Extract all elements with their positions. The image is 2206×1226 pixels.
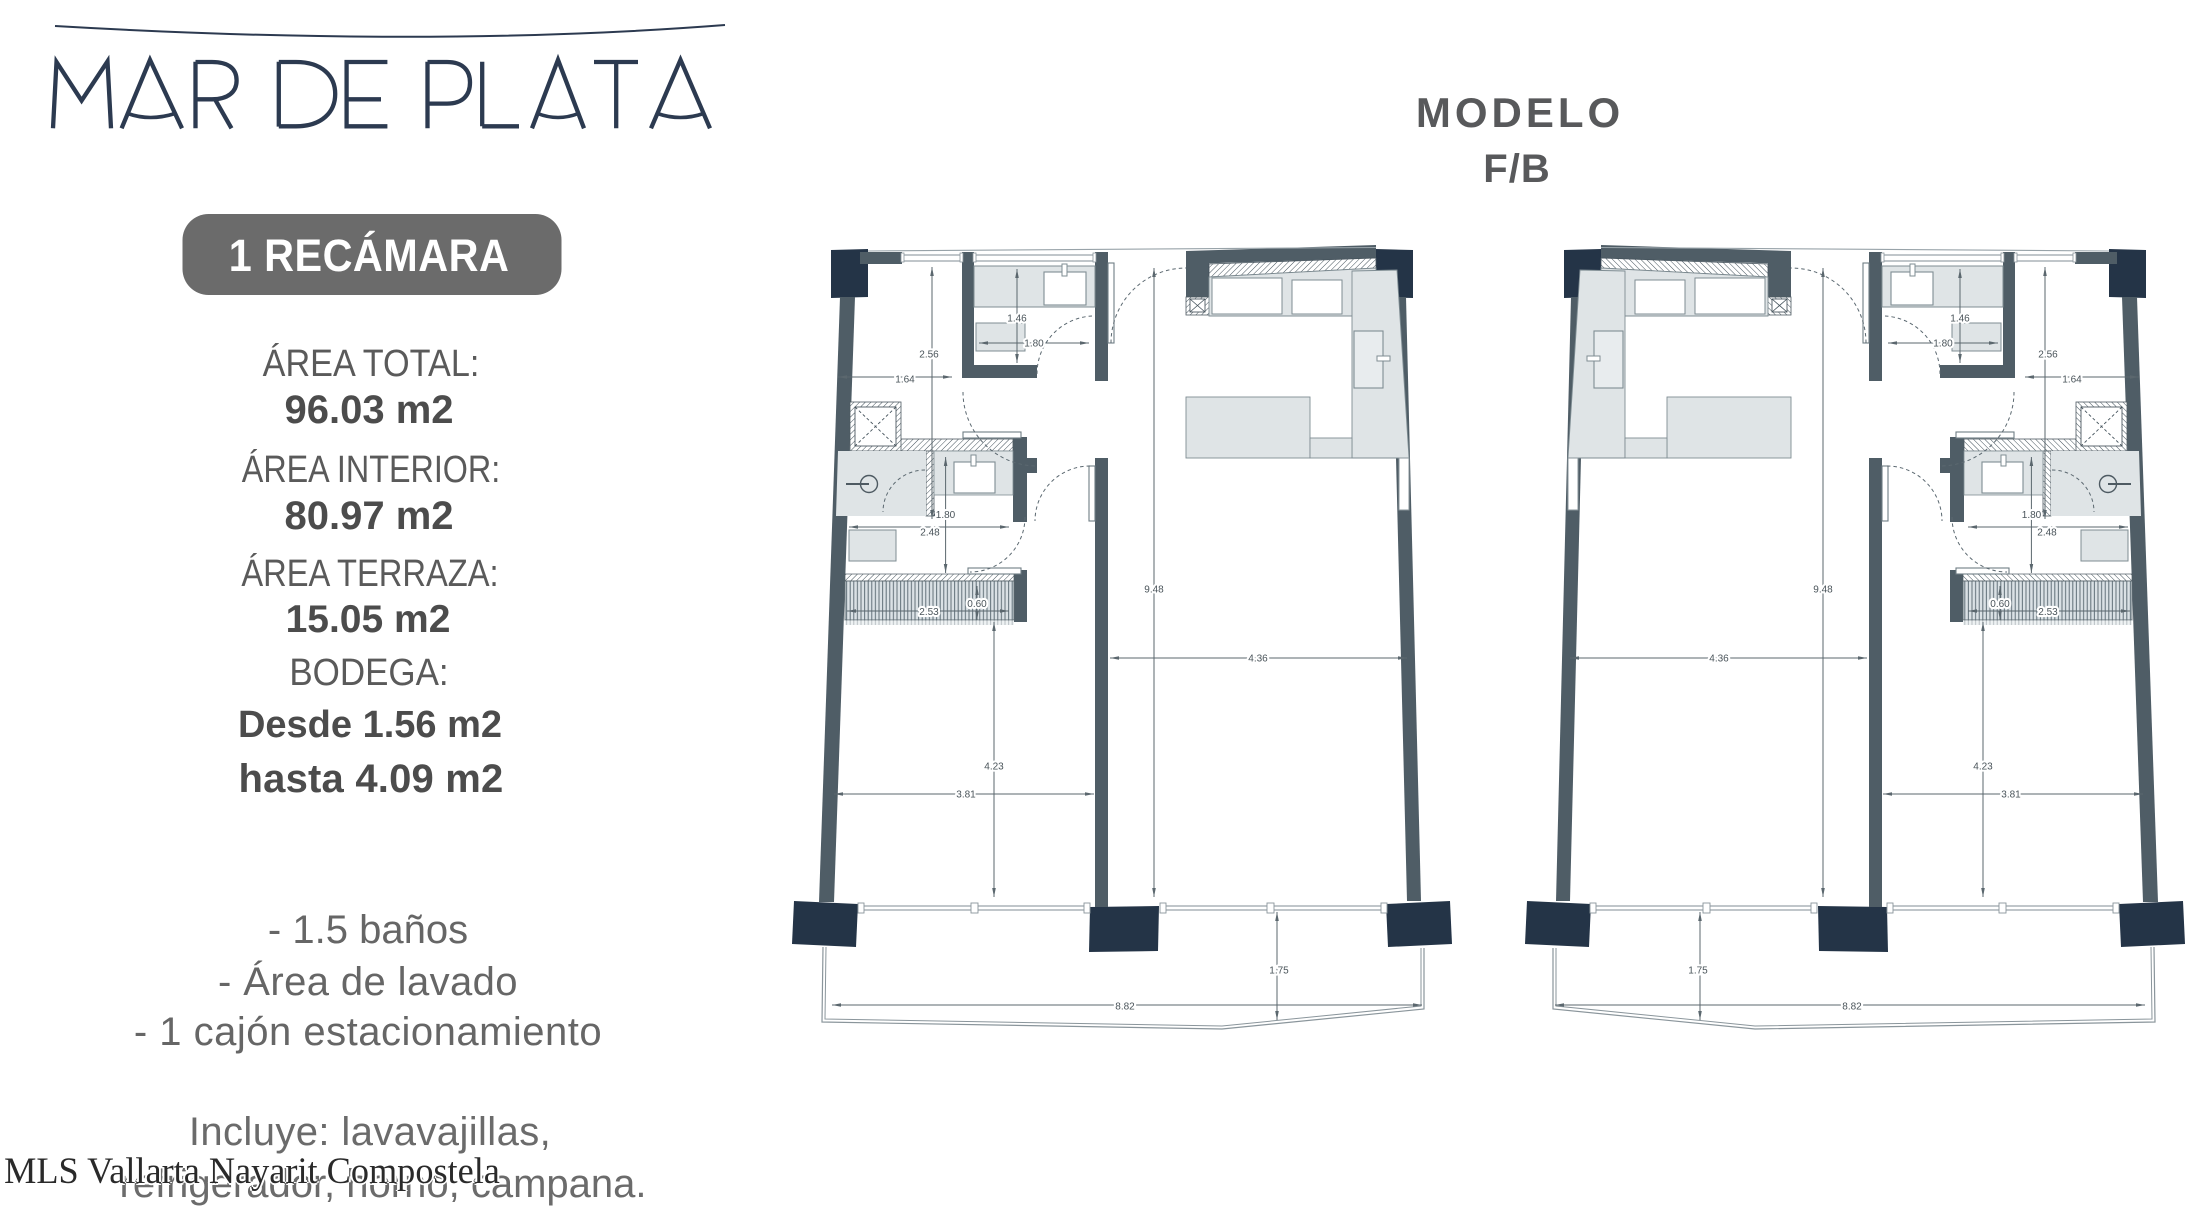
svg-text:4.36: 4.36 xyxy=(1709,654,1729,665)
svg-text:1.46: 1.46 xyxy=(1007,314,1027,325)
svg-text:1.80: 1.80 xyxy=(1933,339,1953,350)
svg-text:0.60: 0.60 xyxy=(967,599,987,610)
svg-text:2.56: 2.56 xyxy=(2038,350,2058,361)
svg-text:8.82: 8.82 xyxy=(1115,1002,1135,1013)
svg-text:1.46: 1.46 xyxy=(1950,314,1970,325)
svg-text:1.80: 1.80 xyxy=(2022,510,2042,521)
svg-text:1.75: 1.75 xyxy=(1688,966,1708,977)
svg-text:2.48: 2.48 xyxy=(2037,528,2057,539)
svg-text:4.23: 4.23 xyxy=(984,762,1004,773)
svg-text:1.80: 1.80 xyxy=(1024,339,1044,350)
svg-text:2.56: 2.56 xyxy=(919,350,939,361)
svg-text:1.64: 1.64 xyxy=(2062,375,2082,386)
svg-text:3.81: 3.81 xyxy=(2001,790,2021,801)
svg-text:2.53: 2.53 xyxy=(2038,607,2058,618)
svg-text:0.60: 0.60 xyxy=(1990,599,2010,610)
svg-text:8.82: 8.82 xyxy=(1842,1002,1862,1013)
svg-text:1.80: 1.80 xyxy=(936,510,956,521)
svg-text:9.48: 9.48 xyxy=(1813,585,1833,596)
svg-text:1.64: 1.64 xyxy=(895,375,915,386)
svg-text:2.53: 2.53 xyxy=(919,607,939,618)
svg-text:4.23: 4.23 xyxy=(1973,762,1993,773)
svg-text:3.81: 3.81 xyxy=(956,790,976,801)
svg-text:4.36: 4.36 xyxy=(1248,654,1268,665)
svg-text:9.48: 9.48 xyxy=(1144,585,1164,596)
svg-text:1.75: 1.75 xyxy=(1269,966,1289,977)
svg-text:2.48: 2.48 xyxy=(920,528,940,539)
